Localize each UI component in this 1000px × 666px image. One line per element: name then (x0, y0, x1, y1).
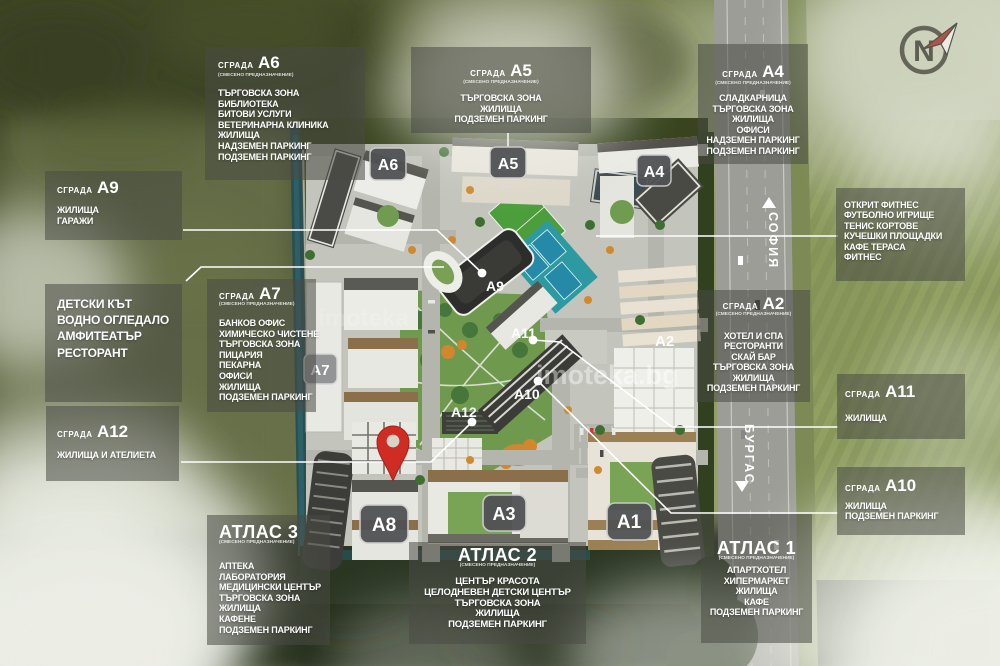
svg-text:A2: A2 (655, 333, 674, 350)
svg-text:БУРГАС: БУРГАС (742, 424, 756, 485)
svg-text:N: N (913, 35, 935, 68)
svg-text:A3: A3 (492, 504, 515, 524)
svg-text:A6: A6 (378, 157, 399, 174)
svg-text:A12: A12 (451, 404, 477, 420)
svg-text:A1: A1 (617, 512, 642, 533)
svg-text:A11: A11 (511, 325, 536, 341)
svg-text:A4: A4 (644, 164, 665, 181)
svg-text:A8: A8 (372, 515, 396, 536)
svg-text:imoteka: imoteka (318, 305, 409, 332)
svg-text:imoteka.bg: imoteka.bg (536, 360, 679, 390)
svg-text:СОФИЯ: СОФИЯ (766, 212, 780, 269)
svg-text:A9: A9 (486, 278, 504, 294)
svg-text:A10: A10 (514, 386, 540, 402)
svg-text:A5: A5 (498, 156, 519, 173)
